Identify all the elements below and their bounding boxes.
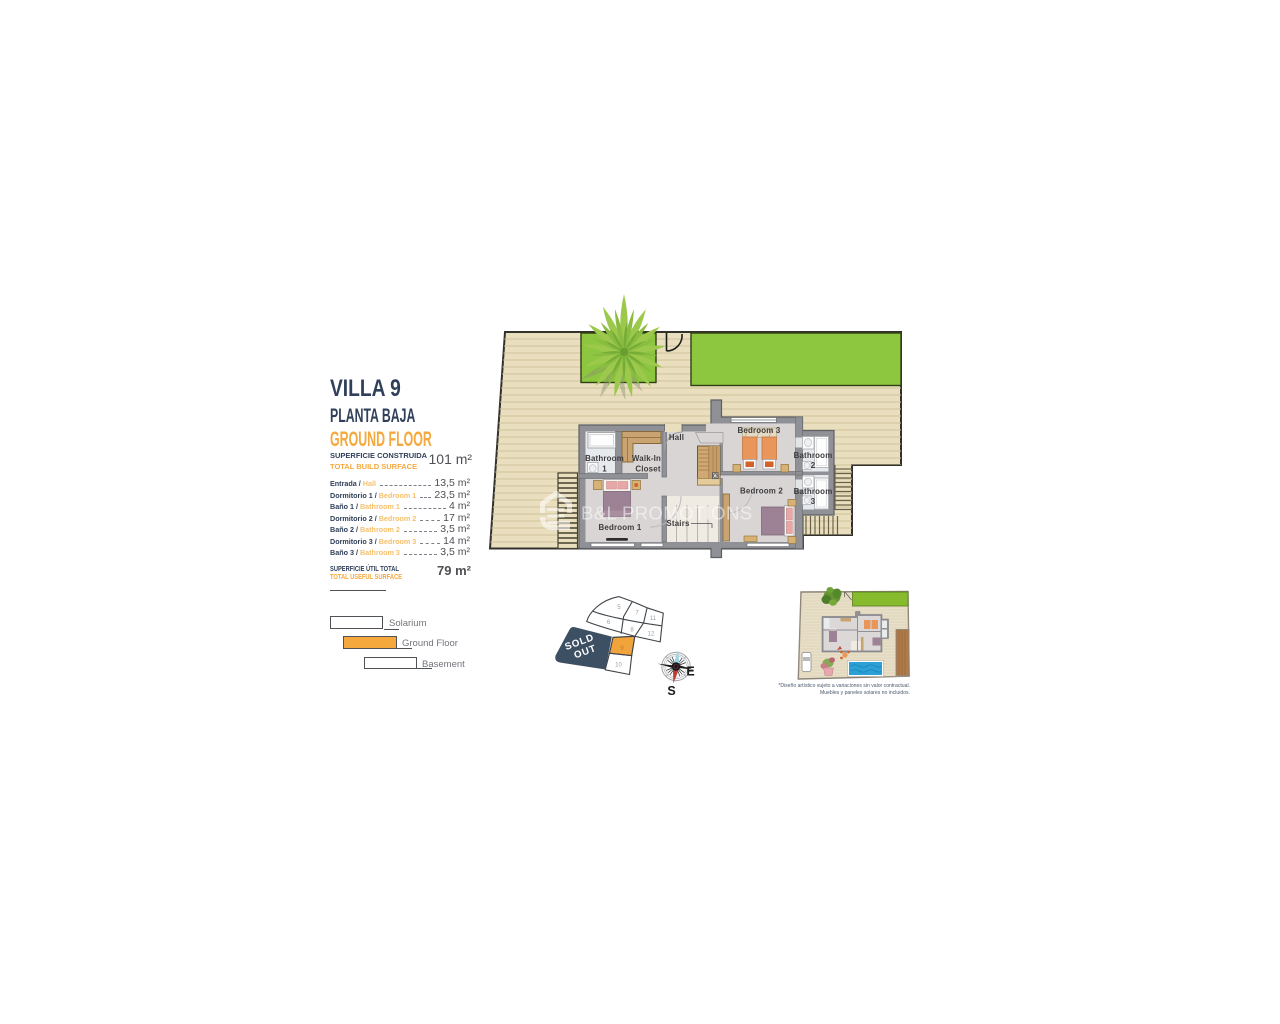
svg-text:11: 11 bbox=[650, 616, 657, 622]
svg-text:Bedroom 3: Bedroom 3 bbox=[737, 426, 780, 435]
svg-text:E: E bbox=[686, 665, 694, 679]
svg-text:10: 10 bbox=[615, 663, 622, 669]
svg-text:Bathroom: Bathroom bbox=[794, 487, 833, 496]
svg-text:2: 2 bbox=[811, 461, 816, 470]
svg-text:1: 1 bbox=[602, 465, 607, 474]
svg-text:3: 3 bbox=[811, 497, 816, 506]
svg-text:12: 12 bbox=[648, 632, 655, 638]
svg-text:Bathroom: Bathroom bbox=[585, 454, 624, 463]
svg-text:Bedroom 1: Bedroom 1 bbox=[598, 523, 641, 532]
svg-text:Hall: Hall bbox=[669, 433, 684, 442]
svg-text:Bedroom 2: Bedroom 2 bbox=[740, 487, 783, 496]
svg-text:B&L PROMOTIONS: B&L PROMOTIONS bbox=[581, 503, 752, 524]
svg-text:Bathroom: Bathroom bbox=[794, 451, 833, 460]
svg-text:Closet: Closet bbox=[635, 465, 660, 474]
svg-text:Walk-In: Walk-In bbox=[632, 454, 661, 463]
